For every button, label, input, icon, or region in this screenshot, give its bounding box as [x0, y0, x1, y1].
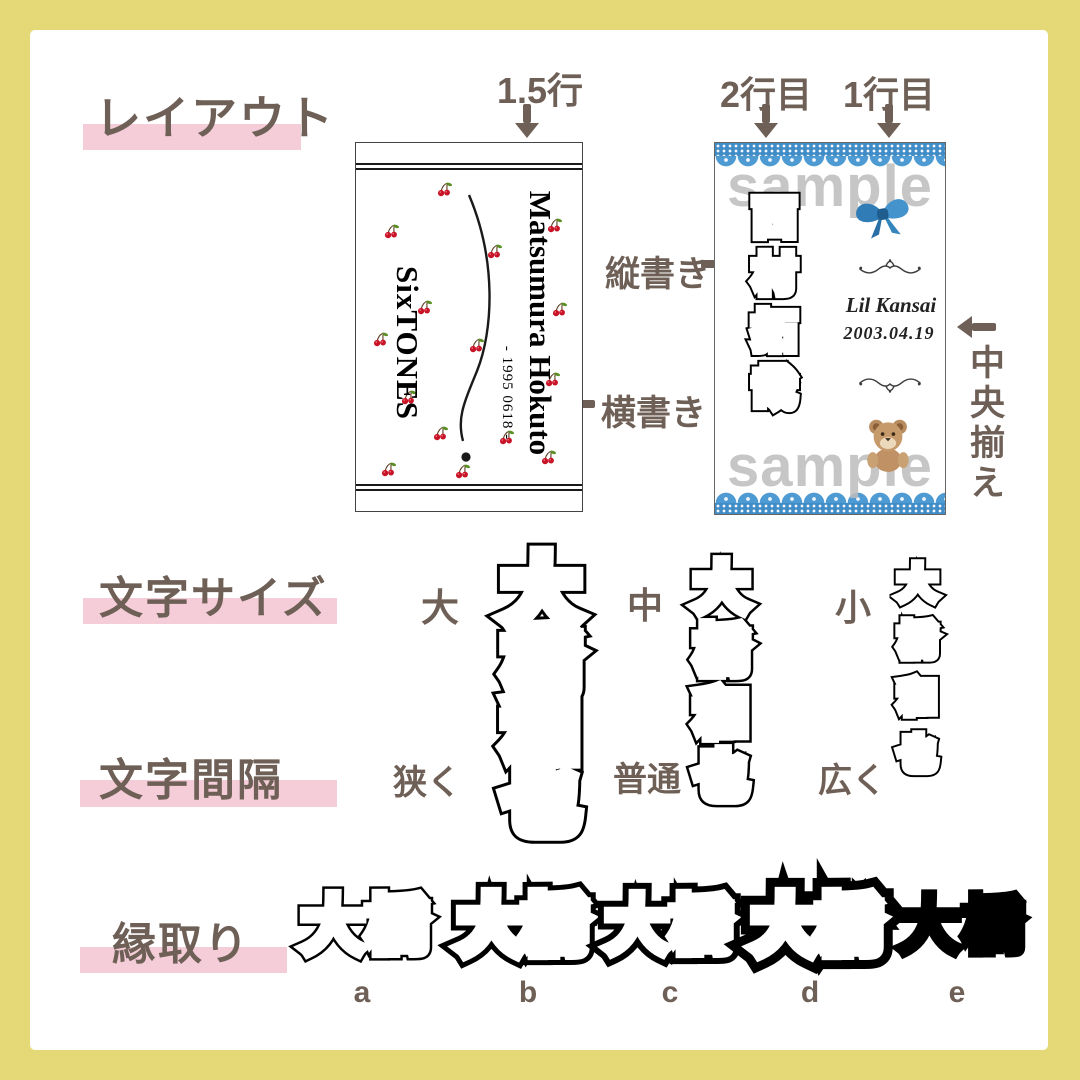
card-left-group-text: SixTONES [391, 243, 425, 443]
spacing-heading-text: 文字間隔 [80, 744, 283, 808]
outline-variant-label-a: a [354, 976, 371, 1010]
cherry-icon [372, 331, 389, 348]
size-label-small: 小 [835, 579, 871, 631]
size-sample-medium: 大橋和也大橋和也大橋和也 [690, 560, 742, 812]
arrow-left-center-align-icon [957, 316, 996, 338]
outline-variant-label-d: d [801, 976, 819, 1010]
outline-sample-a: 大橋大橋大橋 [302, 896, 430, 958]
card-right-group-text: Lil Kansai [846, 293, 936, 318]
spacing-heading: 文字間隔 [80, 744, 283, 808]
teddy-bear-icon [861, 415, 915, 473]
annotation-vertical-writing: 縦書き [605, 246, 710, 297]
lace-bottom-strip-icon [715, 503, 945, 515]
card-right-birth-text: 2003.04.19 [844, 323, 935, 344]
layout-heading: レイアウト [83, 82, 335, 148]
outline-sample-b: 大橋大橋大橋 [460, 896, 588, 958]
spacing-label-wide: 広く [818, 753, 886, 802]
size-heading: 文字サイズ [83, 562, 328, 626]
size-label-large: 大 [421, 577, 459, 632]
arrow-down-1-5-line-icon [514, 104, 540, 138]
spacing-label-normal: 普通 [613, 752, 681, 801]
flourish-bottom-icon [857, 371, 923, 397]
size-sample-large: 大橋和也大橋和也大橋和也 [498, 552, 572, 832]
card-right-name-bubble: 西村拓哉西村拓哉西村拓哉 [750, 195, 792, 423]
arrow-down-line-1-icon [876, 104, 902, 138]
cherry-icon [383, 223, 400, 240]
layout-heading-text: レイアウト [83, 82, 335, 148]
annotation-center-align: 中央揃え [959, 344, 1010, 504]
card-left-birth-text: - 1995 0618 - [497, 323, 515, 463]
outline-variant-label-b: b [519, 976, 537, 1010]
outline-heading-text: 縁取り [80, 908, 250, 972]
spacing-label-narrow: 狭く [393, 755, 461, 804]
card-right: sample sample 西村拓哉西村拓哉西村拓哉 Lil Kansai 20… [714, 142, 946, 515]
ribbon-bow-icon [850, 187, 916, 245]
size-sample-small: 大橋和也大橋和也大橋和也 [894, 563, 932, 791]
cherry-icon [380, 461, 397, 478]
outline-variant-label-c: c [662, 976, 679, 1010]
outline-variant-label-e: e [949, 976, 966, 1010]
size-heading-text: 文字サイズ [83, 562, 328, 626]
outline-sample-d: 大橋大橋大橋 [754, 896, 882, 958]
wavy-line-icon [441, 191, 503, 471]
flourish-top-icon [857, 255, 923, 281]
outline-heading: 縁取り [80, 908, 250, 972]
size-label-medium: 中 [627, 577, 663, 629]
annotation-horizontal-writing: 横書き [601, 385, 706, 436]
outline-sample-c: 大橋大橋大橋 [606, 896, 734, 958]
arrow-down-line-2-icon [753, 104, 779, 138]
outline-sample-e: 大橋大橋 [898, 896, 1026, 958]
card-left: SixTONES Matsumura Hokuto - 1995 0618 - [355, 142, 583, 512]
annotation-1-5-line: 1.5行 [497, 62, 583, 114]
card-left-name-text: Matsumura Hokuto [524, 173, 558, 473]
